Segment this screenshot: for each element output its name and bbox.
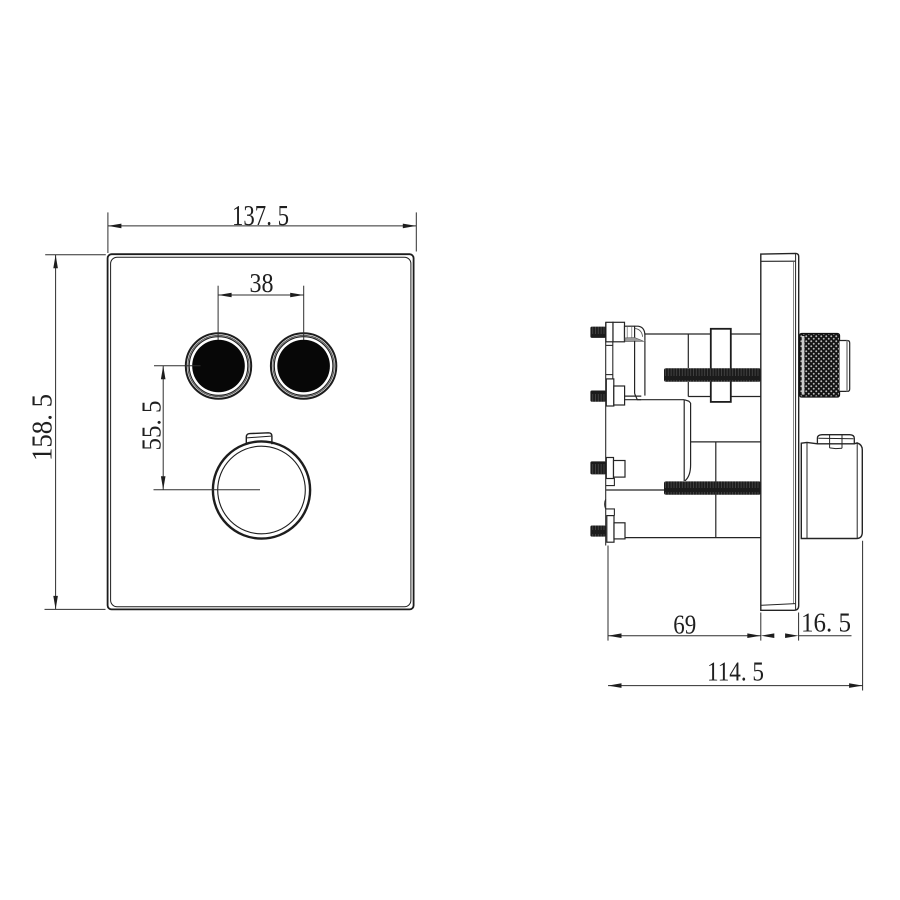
- svg-text:158. 5: 158. 5: [27, 394, 59, 461]
- svg-text:137. 5: 137. 5: [232, 200, 289, 232]
- svg-text:38: 38: [250, 268, 274, 298]
- svg-text:55. 5: 55. 5: [137, 401, 167, 451]
- svg-text:16. 5: 16. 5: [801, 608, 851, 638]
- svg-text:114. 5: 114. 5: [707, 657, 764, 687]
- svg-text:69: 69: [673, 610, 696, 640]
